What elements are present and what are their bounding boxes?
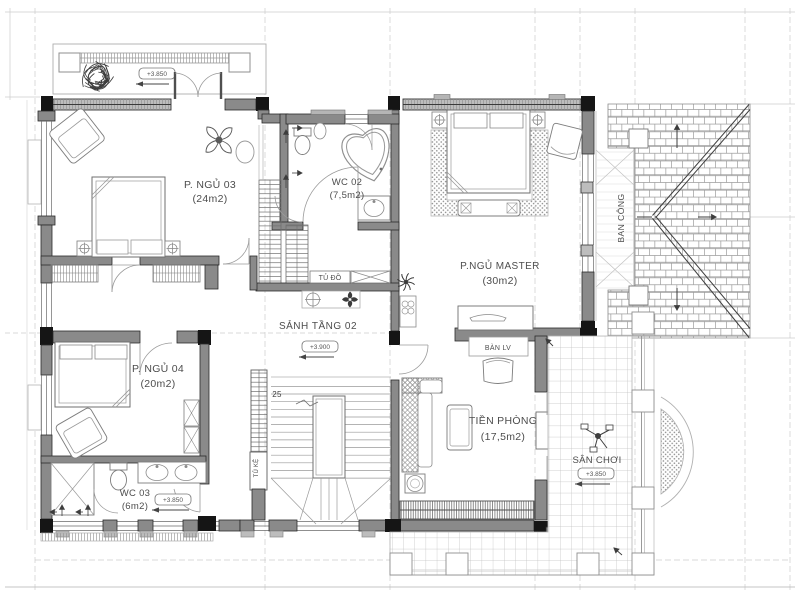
svg-text:+3.850: +3.850 xyxy=(147,71,167,78)
svg-text:P. NGỦ 04: P. NGỦ 04 xyxy=(132,362,184,375)
svg-text:(6m2): (6m2) xyxy=(122,501,148,512)
svg-text:SÂN CHƠI: SÂN CHƠI xyxy=(572,455,621,466)
svg-text:(7,5m2): (7,5m2) xyxy=(330,190,365,201)
svg-text:+3.850: +3.850 xyxy=(586,471,606,478)
svg-text:SẢNH TẦNG 02: SẢNH TẦNG 02 xyxy=(279,319,357,332)
svg-text:(24m2): (24m2) xyxy=(192,193,227,205)
svg-text:(30m2): (30m2) xyxy=(482,275,517,287)
svg-text:WC 02: WC 02 xyxy=(332,177,363,188)
svg-text:TIỀN PHÒNG: TIỀN PHÒNG xyxy=(469,414,537,427)
svg-text:+3.900: +3.900 xyxy=(310,344,330,351)
svg-text:TỦ KỆ: TỦ KỆ xyxy=(252,459,260,478)
svg-text:BÀN LV: BÀN LV xyxy=(485,343,511,352)
svg-text:WC 03: WC 03 xyxy=(120,488,151,499)
svg-text:+3.850: +3.850 xyxy=(163,497,183,504)
svg-text:P. NGỦ 03: P. NGỦ 03 xyxy=(184,178,236,191)
svg-text:(17,5m2): (17,5m2) xyxy=(481,431,525,443)
svg-text:P.NGỦ MASTER: P.NGỦ MASTER xyxy=(460,259,540,272)
svg-text:25: 25 xyxy=(272,390,282,399)
svg-text:BAN CÔNG: BAN CÔNG xyxy=(616,193,626,242)
svg-text:(20m2): (20m2) xyxy=(140,378,175,390)
